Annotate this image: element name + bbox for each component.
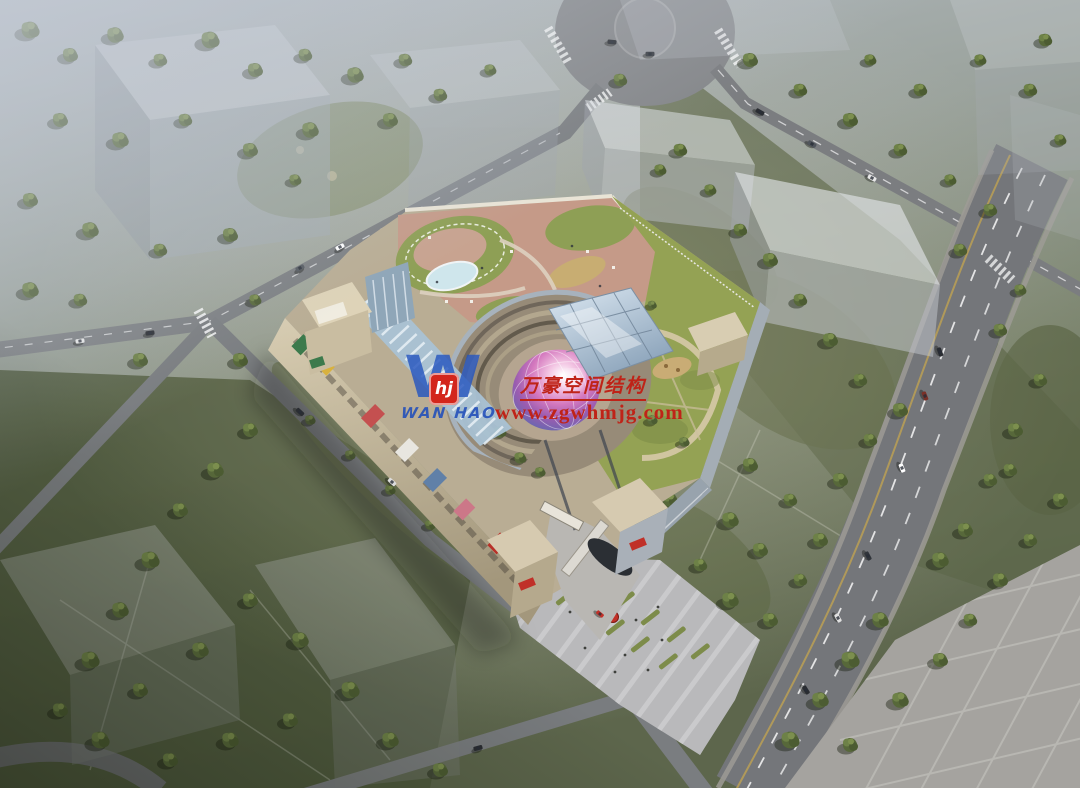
aerial-rendering: W hj WAN HAO 万豪空间结构 www.zgwhmjg.com: [0, 0, 1080, 788]
shadow-overlay: [0, 0, 1080, 788]
scene-svg: [0, 0, 1080, 788]
